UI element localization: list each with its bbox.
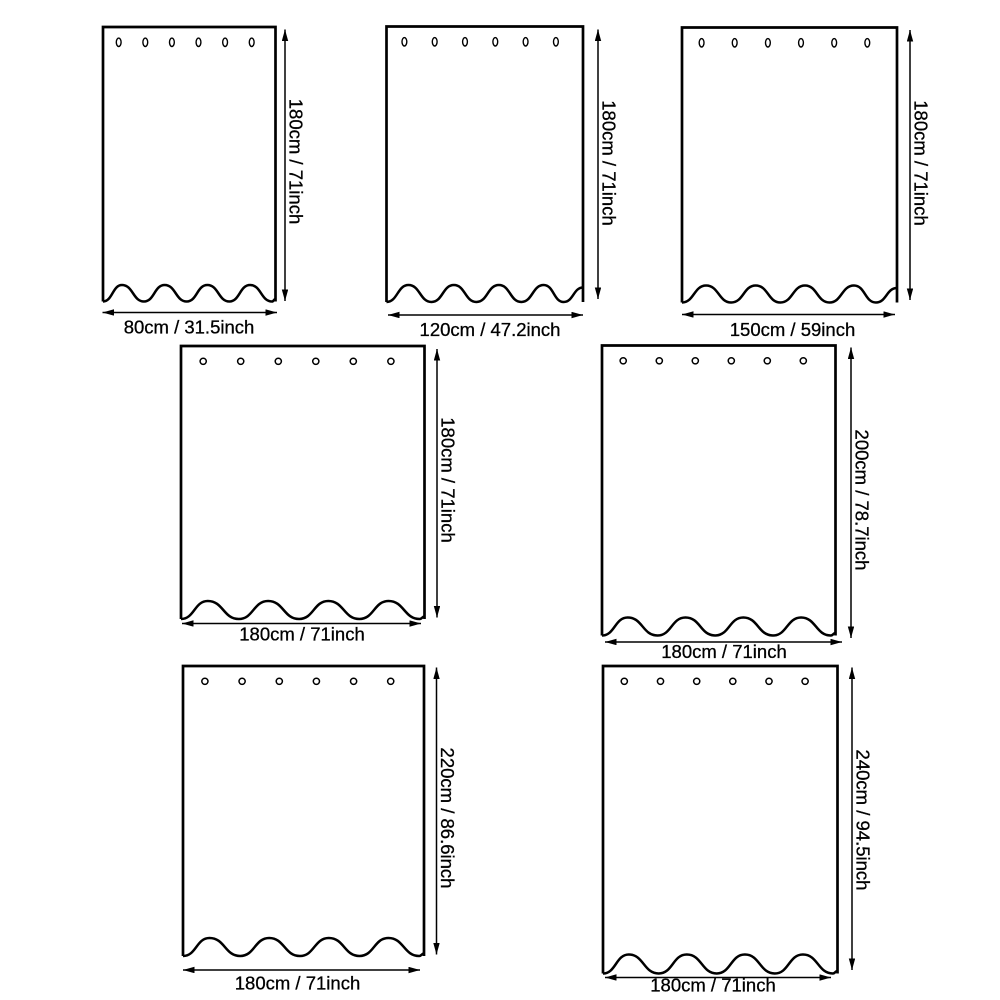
svg-text:180cm / 71inch: 180cm / 71inch: [239, 624, 364, 645]
svg-text:120cm / 47.2inch: 120cm / 47.2inch: [420, 319, 561, 340]
svg-text:180cm / 71inch: 180cm / 71inch: [661, 641, 786, 662]
svg-text:80cm / 31.5inch: 80cm / 31.5inch: [124, 317, 255, 338]
svg-text:180cm / 71inch: 180cm / 71inch: [599, 100, 620, 225]
svg-text:220cm / 86.6inch: 220cm / 86.6inch: [437, 748, 458, 889]
svg-text:180cm / 71inch: 180cm / 71inch: [650, 975, 775, 996]
svg-text:180cm / 71inch: 180cm / 71inch: [911, 100, 932, 225]
svg-text:180cm / 71inch: 180cm / 71inch: [438, 417, 459, 542]
svg-text:180cm / 71inch: 180cm / 71inch: [286, 99, 307, 224]
svg-text:200cm / 78.7inch: 200cm / 78.7inch: [852, 430, 873, 571]
svg-text:180cm / 71inch: 180cm / 71inch: [235, 973, 360, 994]
svg-text:240cm / 94.5inch: 240cm / 94.5inch: [853, 750, 874, 891]
svg-text:150cm / 59inch: 150cm / 59inch: [730, 319, 855, 340]
